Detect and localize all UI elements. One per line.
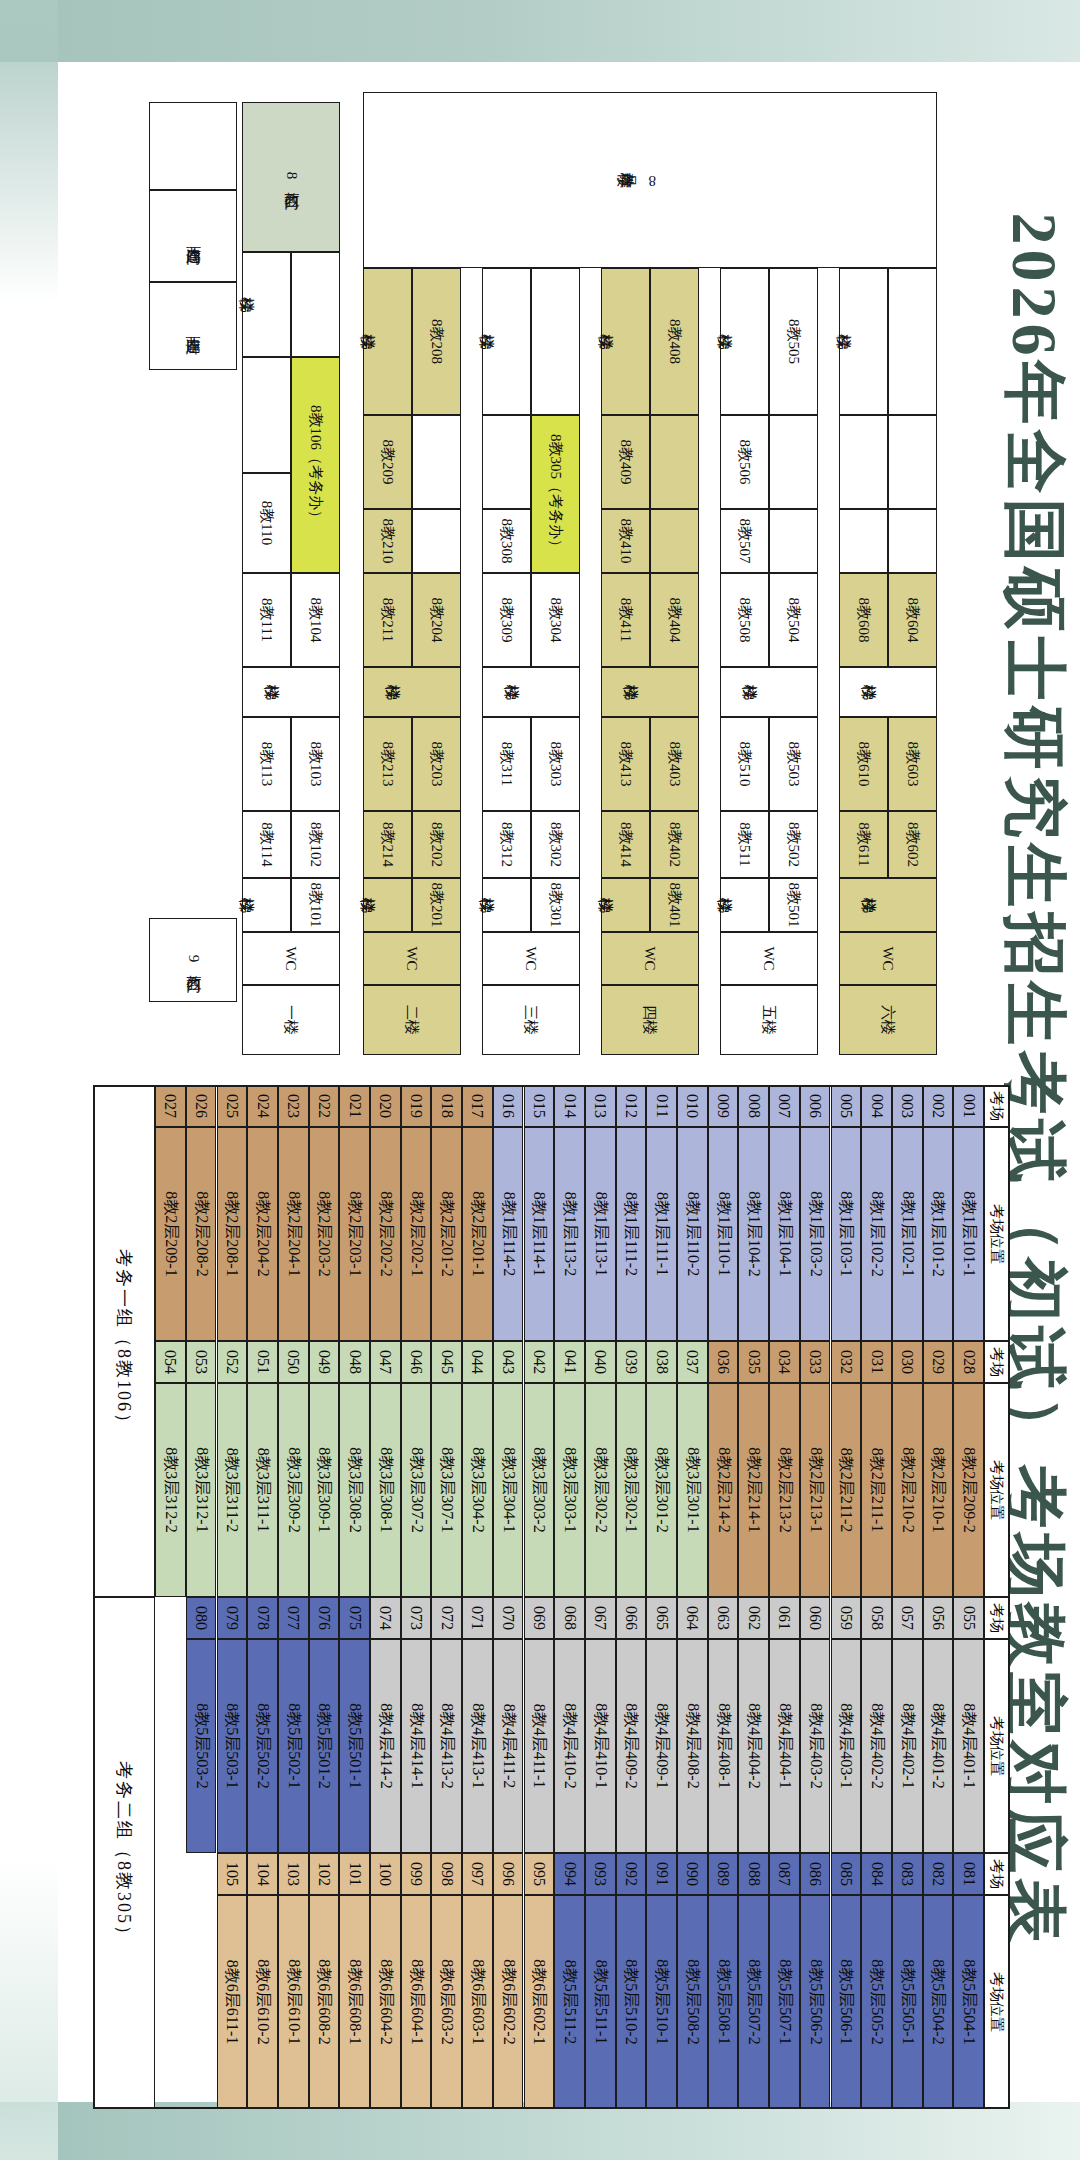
room-cell: 8教408: [650, 268, 699, 415]
room-cell: 8教113: [242, 717, 291, 811]
room-cell: 8教604: [888, 573, 937, 667]
cell-text: WC: [880, 946, 897, 970]
room-cell: 8教110: [242, 473, 291, 573]
cell-text: 8教104: [306, 598, 325, 643]
room-cell: 8教208: [412, 268, 461, 415]
cell-text: 五楼: [760, 1005, 779, 1035]
cell-text: 8教511: [735, 822, 754, 866]
room-cell: 8教401: [650, 878, 699, 932]
room-cell: 8教312: [482, 811, 531, 878]
west-corridor-cell: 西连廊: [149, 282, 237, 370]
room-cell: 8教211: [363, 573, 412, 667]
floor-label: 二楼: [363, 985, 461, 1055]
empty-cell: [888, 268, 937, 415]
room-cell: 8教411: [601, 573, 650, 667]
cell-text: 8教311: [497, 742, 516, 786]
cell-text: 楼梯: [625, 332, 627, 351]
floor-label: 三楼: [482, 985, 580, 1055]
cell-text: 8教214: [378, 822, 397, 867]
cell-text: WC: [523, 946, 540, 970]
room-cell: 8教409: [601, 415, 650, 509]
cell-text: 楼梯: [506, 896, 508, 915]
room-cell: 8教104: [291, 573, 340, 667]
cell-text: 楼梯: [411, 683, 413, 702]
cell-text: 8号教学楼: [644, 171, 657, 190]
cell-text: 楼梯: [744, 332, 746, 351]
wc-cell: WC: [242, 932, 340, 985]
cell-text: 9教西门: [184, 954, 203, 966]
floor-label: 一楼: [242, 985, 340, 1055]
teal-band-left-edge: [0, 0, 58, 2160]
stairs-cell: 楼梯: [242, 667, 340, 717]
cell-text: 8教608: [854, 598, 873, 643]
cell-text: 8教506: [735, 440, 754, 485]
cell-text: 8教403: [665, 742, 684, 787]
empty-cell: [149, 102, 237, 190]
exam-office-cell: 8教106（考务办）: [291, 357, 340, 573]
room-cell: 8教610: [839, 717, 888, 811]
cell-text: 8教102: [306, 822, 325, 867]
cell-text: 8教602: [903, 822, 922, 867]
stairs-cell: 楼梯: [720, 878, 769, 932]
room-cell: 8教114: [242, 811, 291, 878]
cell-text: 楼梯: [649, 683, 651, 702]
room-cell: 8教602: [888, 811, 937, 878]
wc-cell: WC: [601, 932, 699, 985]
cell-text: 8教204: [427, 598, 446, 643]
empty-cell: [839, 415, 888, 509]
floor-label: 六楼: [839, 985, 937, 1055]
room-cell: 8教309: [482, 573, 531, 667]
cell-text: 楼梯: [625, 896, 627, 915]
cell-text: 8教213: [378, 742, 397, 787]
room-cell: 8教103: [291, 717, 340, 811]
wc-cell: WC: [720, 932, 818, 985]
cell-text: WC: [404, 946, 421, 970]
empty-cell: [412, 415, 461, 509]
cell-text: 8教604: [903, 598, 922, 643]
cell-text: 楼梯: [290, 683, 292, 702]
gate-cell: 9教西门: [149, 918, 237, 1002]
room-cell: 8教209: [363, 415, 412, 509]
room-cell: 8教204: [412, 573, 461, 667]
room-cell: 8教511: [720, 811, 769, 878]
wc-cell: WC: [482, 932, 580, 985]
cell-text: 楼梯: [887, 896, 889, 915]
cell-text: 8教408: [665, 319, 684, 364]
exam-office-cell: 8教305（考务办）: [531, 415, 580, 573]
stairs-cell: 楼梯: [363, 667, 461, 717]
cell-text: 8教505: [784, 319, 803, 364]
stairs-cell: 楼梯: [482, 667, 580, 717]
room-cell: 8教203: [412, 717, 461, 811]
room-cell: 8教101: [291, 878, 340, 932]
cell-text: 8教114: [257, 822, 276, 866]
teal-band-top-edge: [0, 0, 1080, 62]
stairs-cell: 楼梯: [720, 268, 769, 415]
stairs-cell: 楼梯: [839, 268, 888, 415]
room-cell: 8教304: [531, 573, 580, 667]
cell-text: 8教203: [427, 742, 446, 787]
cell-text: 8教101: [306, 883, 325, 928]
room-cell: 8教502: [769, 811, 818, 878]
cell-text: 8教103: [306, 742, 325, 787]
table-outer-frame: [93, 1085, 1010, 2109]
room-cell: 8教213: [363, 717, 412, 811]
cell-text: 楼梯: [744, 896, 746, 915]
room-cell: 8教102: [291, 811, 340, 878]
room-cell: 8教111: [242, 573, 291, 667]
cell-text: 8教309: [497, 598, 516, 643]
room-cell: 8教504: [769, 573, 818, 667]
stairs-cell: 楼梯: [839, 667, 937, 717]
cell-text: 8教201: [427, 883, 446, 928]
cell-text: 楼梯: [506, 332, 508, 351]
cell-text: 8教302: [546, 822, 565, 867]
room-cell: 8教303: [531, 717, 580, 811]
room-cell: 8教214: [363, 811, 412, 878]
cell-text: 8教303: [546, 742, 565, 787]
cell-text: 8教210: [378, 519, 397, 564]
stairs-cell: 楼梯: [601, 667, 699, 717]
room-cell: 8教210: [363, 509, 412, 573]
cell-text: WC: [761, 946, 778, 970]
room-cell: 8教201: [412, 878, 461, 932]
cell-text: 8教113: [257, 742, 276, 786]
cell-text: 西连廊: [184, 325, 203, 328]
room-cell: 8教507: [720, 509, 769, 573]
floor-label: 四楼: [601, 985, 699, 1055]
room-cell: 8教503: [769, 717, 818, 811]
cell-text: 8教501: [784, 883, 803, 928]
cell-text: 8教西门: [282, 171, 301, 183]
stairs-cell: 楼梯: [601, 878, 650, 932]
cell-text: 8教312: [497, 822, 516, 867]
cell-text: 楼梯: [768, 683, 770, 702]
empty-cell: [482, 415, 531, 509]
empty-cell: [531, 268, 580, 415]
room-cell: 8教301: [531, 878, 580, 932]
room-cell: 8教506: [720, 415, 769, 509]
cell-text: 8教106（考务办）: [306, 405, 325, 525]
cell-text: 8教305（考务办）: [546, 434, 565, 554]
empty-cell: [291, 252, 340, 357]
cell-text: 一楼: [282, 1005, 301, 1035]
cell-text: 8教603: [903, 742, 922, 787]
cell-text: 楼梯: [266, 295, 268, 314]
cell-text: 西连廊门: [184, 234, 203, 238]
room-cell: 8教403: [650, 717, 699, 811]
cell-text: 四楼: [641, 1005, 660, 1035]
poster-stage: 2026年全国硕士研究生招生考试（初试）考场教室对应表 8号教学楼楼梯8教604…: [0, 0, 1080, 2160]
cell-text: 六楼: [879, 1005, 898, 1035]
empty-cell: [650, 415, 699, 509]
room-cell: 8教410: [601, 509, 650, 573]
room-cell: 8教311: [482, 717, 531, 811]
empty-cell: [242, 357, 291, 473]
cell-text: 8教308: [497, 519, 516, 564]
cell-text: 8教208: [427, 319, 446, 364]
stairs-cell: 楼梯: [363, 268, 412, 415]
cell-text: 8教401: [665, 883, 684, 928]
cell-text: 8教413: [616, 742, 635, 787]
empty-cell: [412, 509, 461, 573]
room-cell: 8教404: [650, 573, 699, 667]
stairs-cell: 楼梯: [601, 268, 650, 415]
cell-text: 8教202: [427, 822, 446, 867]
room-cell: 8教413: [601, 717, 650, 811]
wc-cell: WC: [839, 932, 937, 985]
cell-text: 8教611: [854, 822, 873, 866]
cell-text: 楼梯: [887, 683, 889, 702]
cell-text: 8教111: [257, 598, 276, 642]
cell-text: 8教409: [616, 440, 635, 485]
room-cell: 8教603: [888, 717, 937, 811]
cell-text: 8教502: [784, 822, 803, 867]
empty-cell: [888, 509, 937, 573]
floor-label: 五楼: [720, 985, 818, 1055]
cell-text: 8教410: [616, 519, 635, 564]
stairs-cell: 楼梯: [482, 268, 531, 415]
cell-text: 8教504: [784, 598, 803, 643]
poster-viewport: 2026年全国硕士研究生招生考试（初试）考场教室对应表 8号教学楼楼梯8教604…: [0, 0, 1080, 2160]
teal-band-bottom-edge: [0, 2102, 1080, 2160]
cell-text: WC: [642, 946, 659, 970]
stairs-cell: 楼梯: [720, 667, 818, 717]
stairs-cell: 楼梯: [242, 878, 291, 932]
room-cell: 8教414: [601, 811, 650, 878]
empty-cell: [888, 415, 937, 509]
cell-text: 8教508: [735, 598, 754, 643]
room-cell: 8教608: [839, 573, 888, 667]
cell-text: 二楼: [403, 1005, 422, 1035]
gate-cell: 西连廊门: [149, 190, 237, 282]
cell-text: 楼梯: [863, 332, 865, 351]
building-label: 8号教学楼: [363, 92, 937, 268]
cell-text: 8教301: [546, 883, 565, 928]
cell-text: 8教404: [665, 598, 684, 643]
room-cell: 8教308: [482, 509, 531, 573]
cell-text: 楼梯: [266, 896, 268, 915]
cell-text: 8教211: [378, 598, 397, 642]
stairs-cell: 楼梯: [242, 252, 291, 357]
cell-text: 楼梯: [387, 332, 389, 351]
room-cell: 8教510: [720, 717, 769, 811]
stairs-cell: 楼梯: [839, 878, 937, 932]
empty-cell: [769, 415, 818, 509]
room-cell: 8教611: [839, 811, 888, 878]
cell-text: 8教209: [378, 440, 397, 485]
stairs-cell: 楼梯: [482, 878, 531, 932]
empty-cell: [650, 509, 699, 573]
empty-cell: [769, 509, 818, 573]
cell-text: 8教304: [546, 598, 565, 643]
cell-text: 8教411: [616, 598, 635, 642]
wc-cell: WC: [363, 932, 461, 985]
empty-cell: [839, 509, 888, 573]
room-cell: 8教508: [720, 573, 769, 667]
cell-text: 8教402: [665, 822, 684, 867]
cell-text: 8教110: [257, 501, 276, 545]
cell-text: 8教503: [784, 742, 803, 787]
cell-text: 三楼: [522, 1005, 541, 1035]
gate-cell: 8教西门: [242, 102, 340, 252]
room-cell: 8教501: [769, 878, 818, 932]
room-cell: 8教302: [531, 811, 580, 878]
room-cell: 8教202: [412, 811, 461, 878]
stairs-cell: 楼梯: [363, 878, 412, 932]
cell-text: 8教610: [854, 742, 873, 787]
cell-text: 楼梯: [530, 683, 532, 702]
cell-text: 楼梯: [387, 896, 389, 915]
cell-text: WC: [283, 946, 300, 970]
room-cell: 8教402: [650, 811, 699, 878]
cell-text: 8教507: [735, 519, 754, 564]
cell-text: 8教414: [616, 822, 635, 867]
room-cell: 8教505: [769, 268, 818, 415]
cell-text: 8教510: [735, 742, 754, 787]
